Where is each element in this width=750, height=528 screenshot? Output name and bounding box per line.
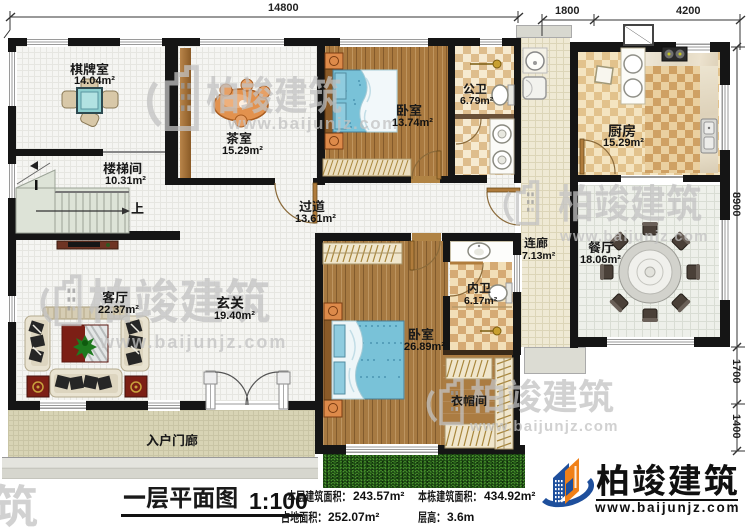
svg-text:www.baijunjz.com: www.baijunjz.com	[227, 114, 399, 133]
svg-text:www.baijunjz.com: www.baijunjz.com	[99, 332, 287, 352]
svg-text:www.baijunjz.com: www.baijunjz.com	[469, 418, 619, 435]
svg-text:www.baijunjz.com: www.baijunjz.com	[594, 500, 740, 515]
svg-text:www.baijunjz.com: www.baijunjz.com	[559, 228, 709, 245]
